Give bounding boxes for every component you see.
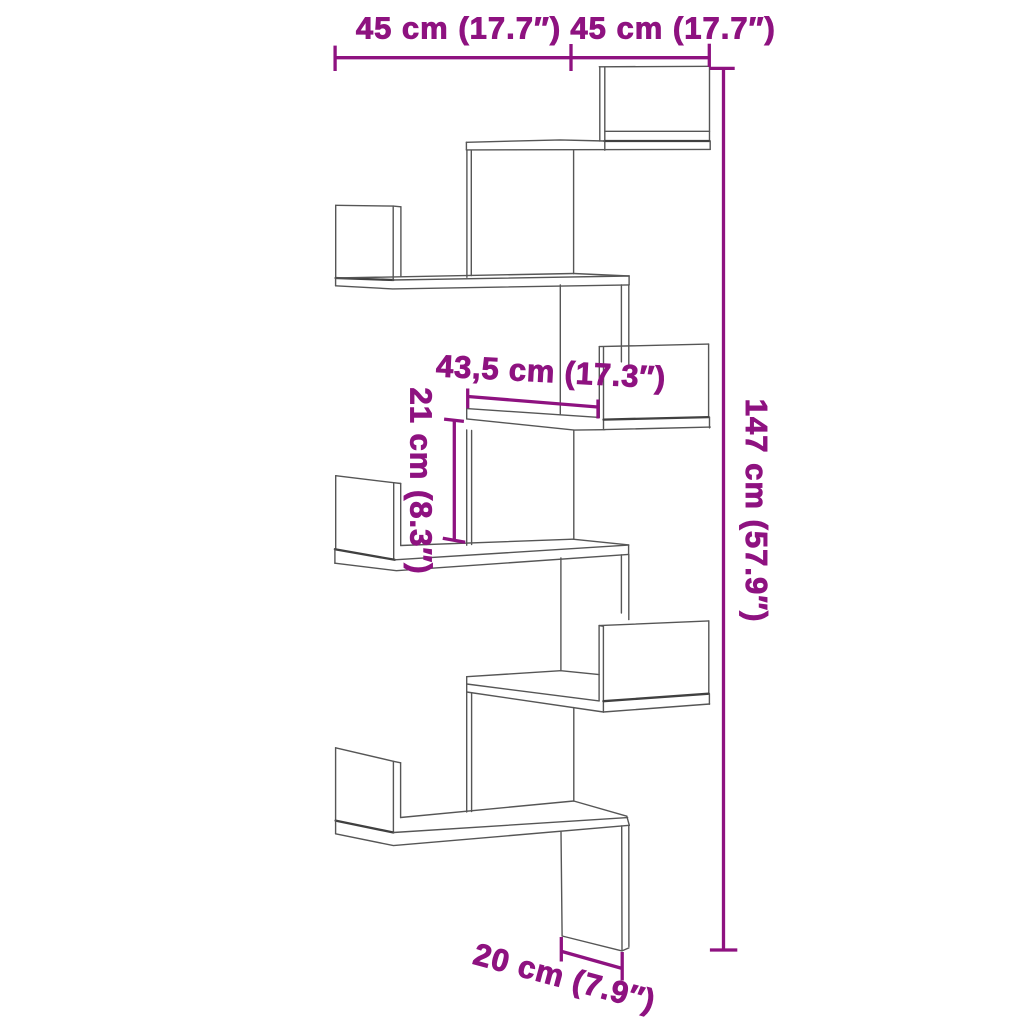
svg-text:45 cm (17.7″): 45 cm (17.7″) (356, 11, 561, 46)
svg-text:21 cm (8.3″): 21 cm (8.3″) (404, 387, 439, 574)
svg-text:45 cm (17.7″): 45 cm (17.7″) (570, 11, 775, 46)
svg-text:147 cm (57.9″): 147 cm (57.9″) (739, 399, 774, 623)
